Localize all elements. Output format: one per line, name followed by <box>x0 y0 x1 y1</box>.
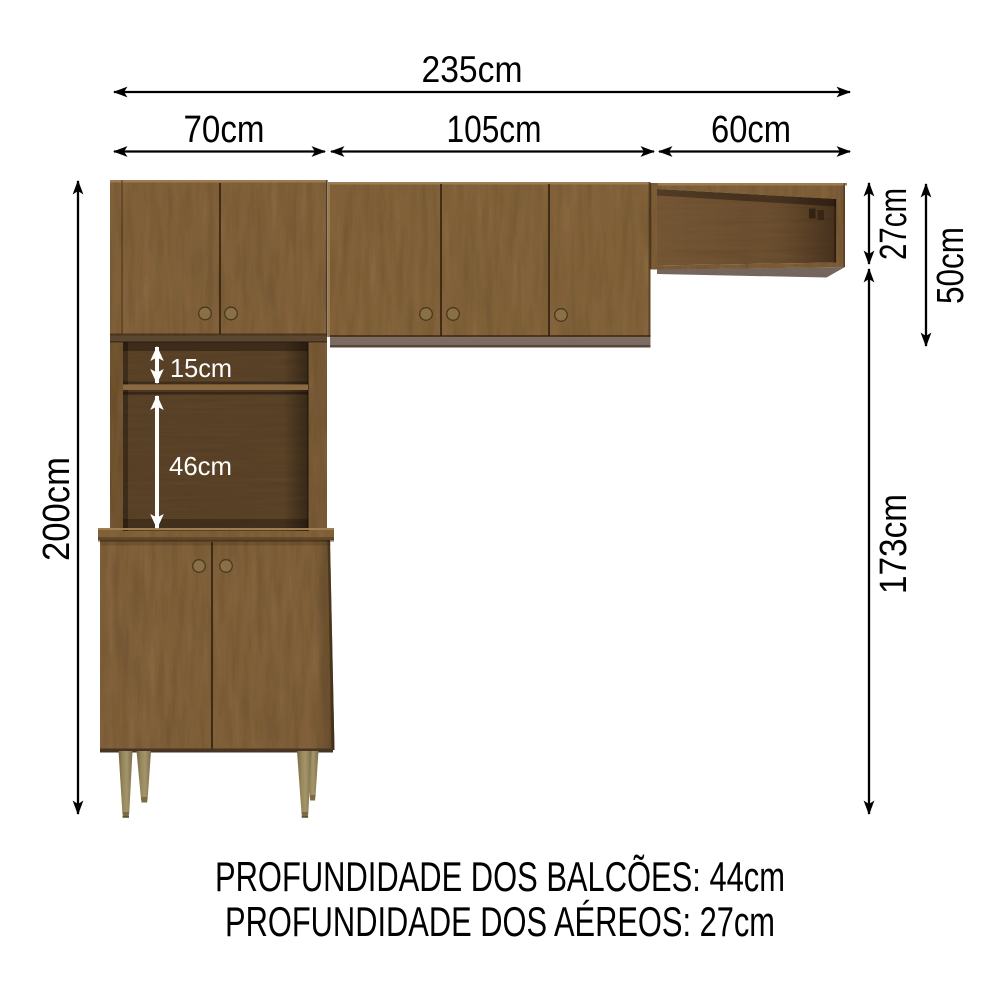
svg-text:PROFUNDIDADE DOS BALCÕES: 44cm: PROFUNDIDADE DOS BALCÕES: 44cm <box>215 853 785 900</box>
svg-text:50cm: 50cm <box>930 227 972 304</box>
svg-text:70cm: 70cm <box>184 109 265 151</box>
svg-text:235cm: 235cm <box>422 49 523 90</box>
svg-text:60cm: 60cm <box>711 109 791 151</box>
svg-text:15cm: 15cm <box>170 353 232 383</box>
svg-text:46cm: 46cm <box>169 451 232 481</box>
svg-text:27cm: 27cm <box>873 188 915 260</box>
svg-text:200cm: 200cm <box>36 457 78 561</box>
svg-text:105cm: 105cm <box>447 109 542 151</box>
svg-text:PROFUNDIDADE DOS AÉREOS: 27cm: PROFUNDIDADE DOS AÉREOS: 27cm <box>225 898 775 945</box>
svg-text:173cm: 173cm <box>873 494 915 594</box>
